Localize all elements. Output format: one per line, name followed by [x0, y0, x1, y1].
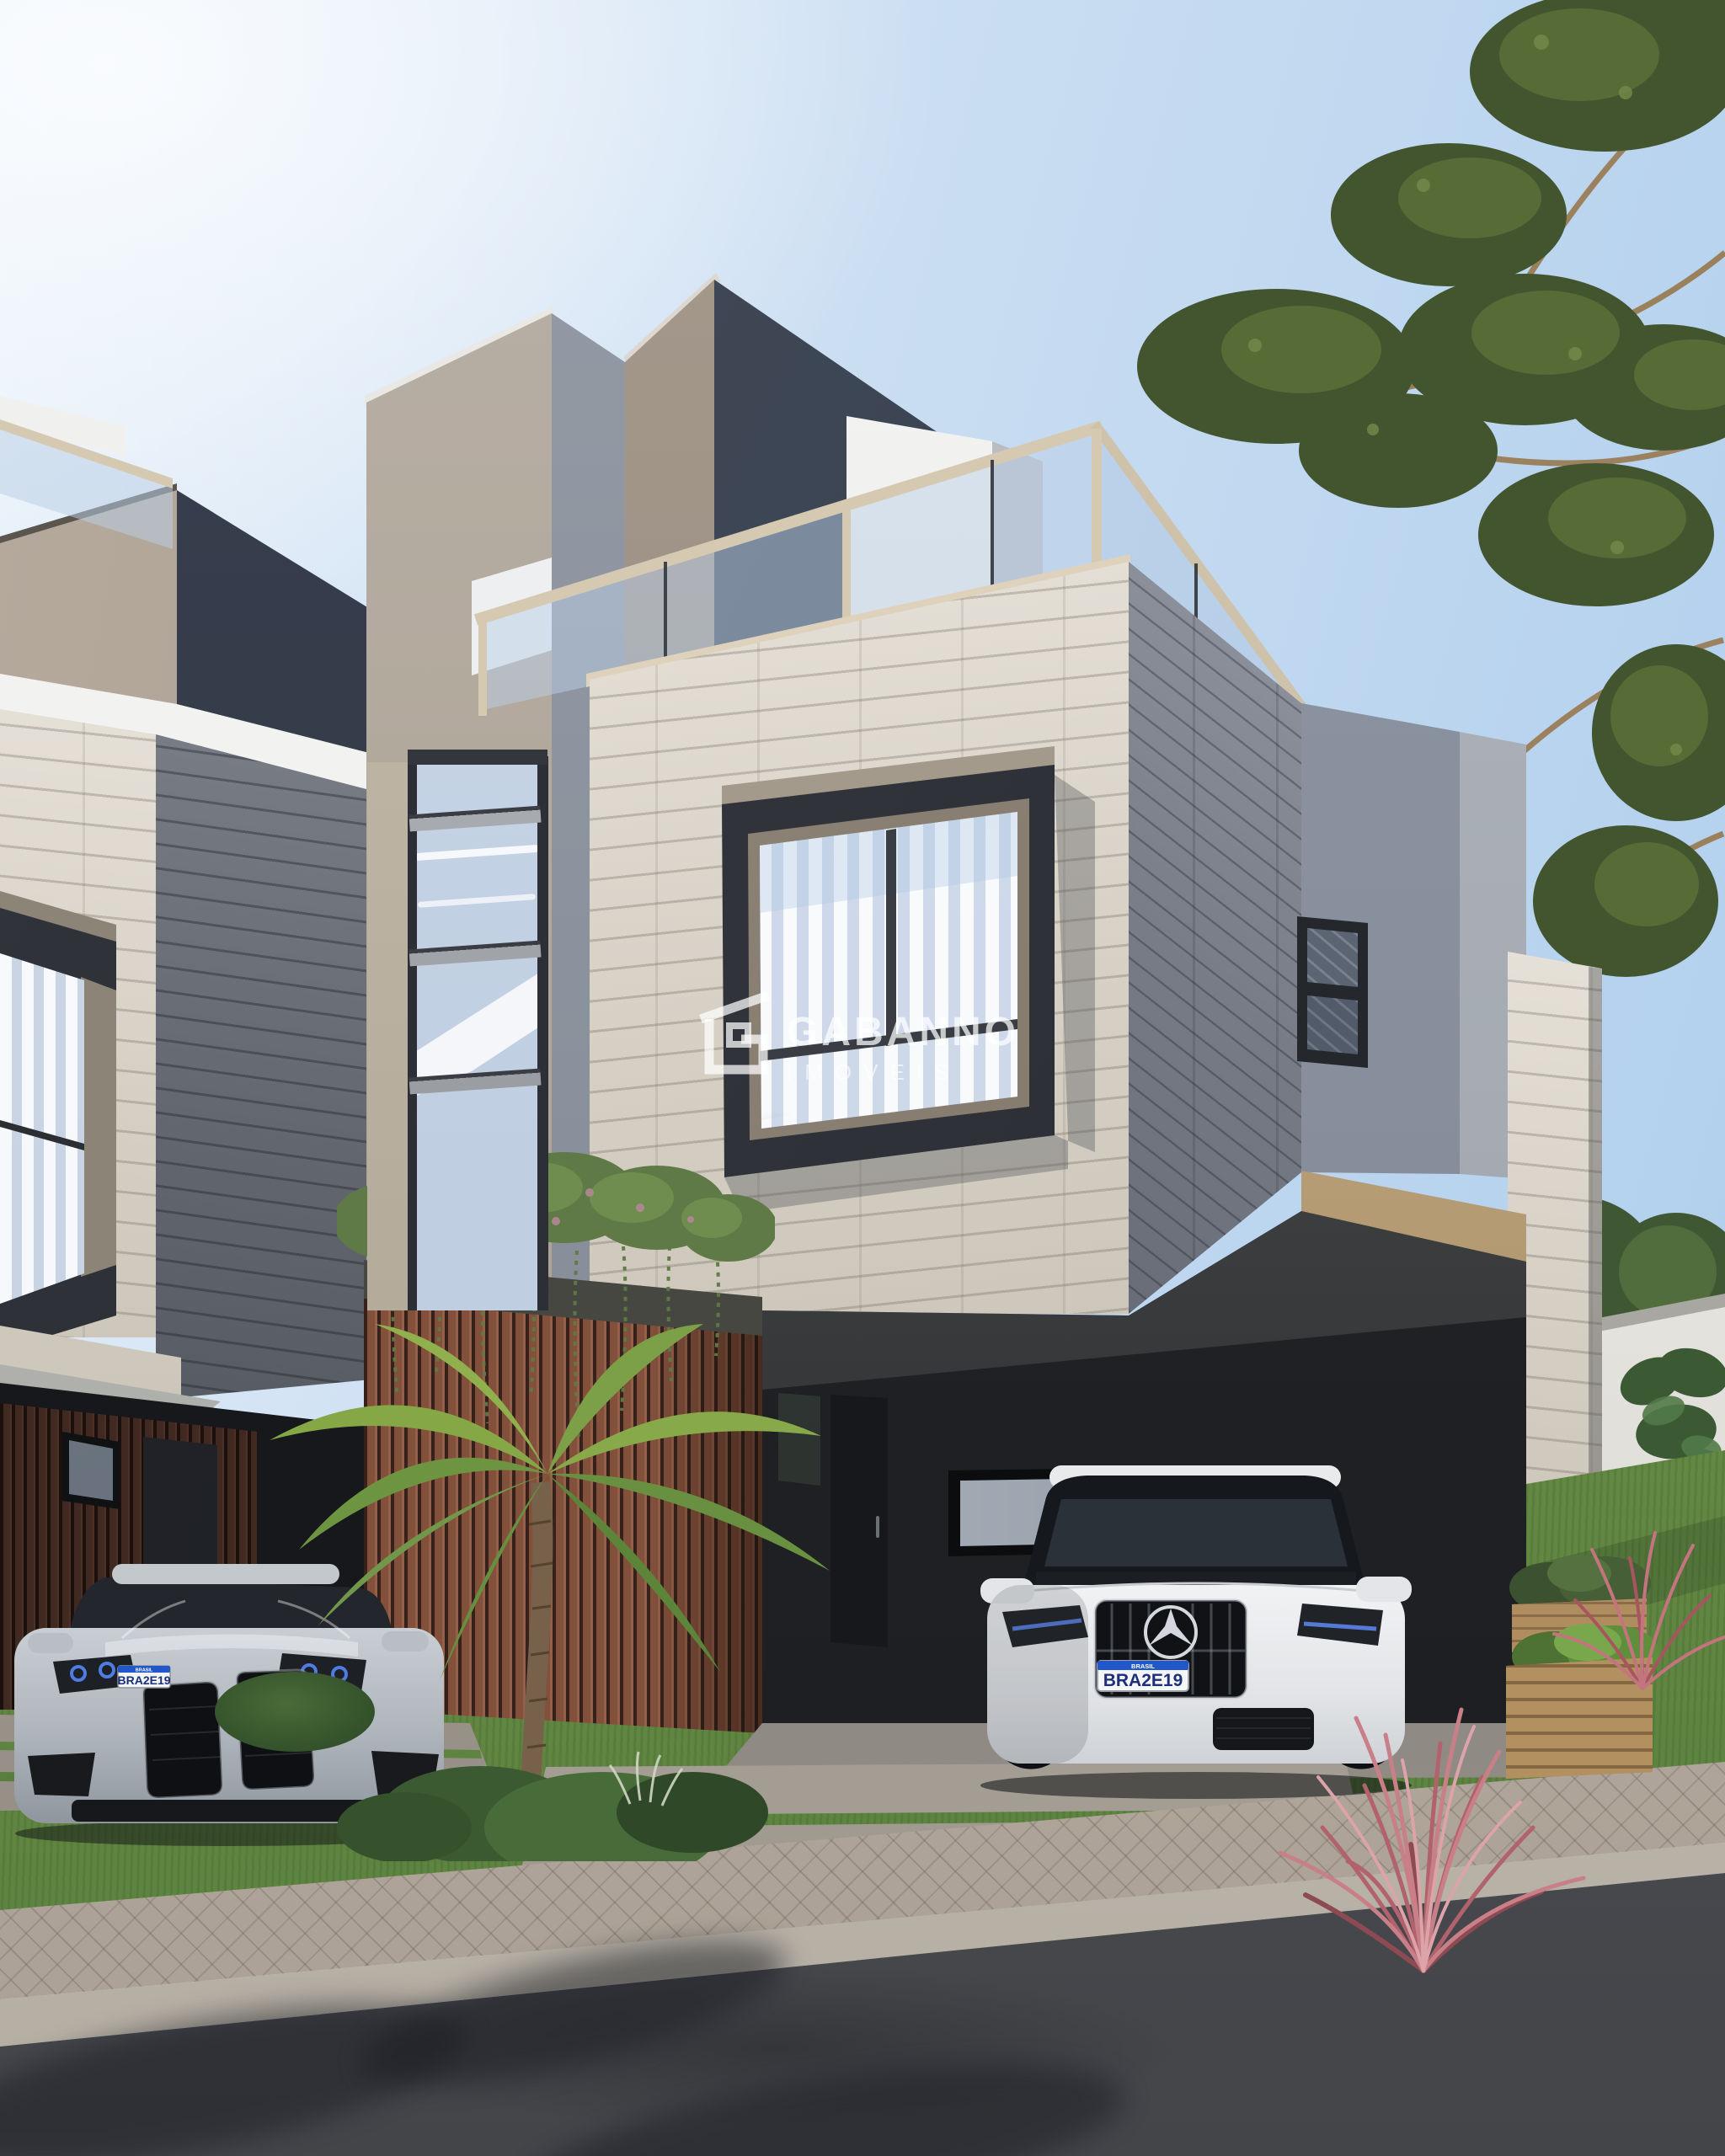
mercedes-plate-band-text: BRASIL: [1131, 1662, 1155, 1670]
curtain-wall-mullion-left: [408, 756, 417, 1310]
watermark-subtitle: IMÓVEIS: [787, 1059, 1019, 1086]
curtain-wall-head-frame: [408, 750, 547, 765]
mercedes-plate-text: BRA2E19: [1103, 1671, 1183, 1690]
watermark-brand: GABANNO: [787, 1012, 1019, 1053]
mercedes-license-plate: BRASIL BRA2E19: [1097, 1661, 1188, 1691]
pink-ornamental-grass-large: [1230, 1684, 1617, 1988]
pink-ornamental-grass-right: [1541, 1508, 1725, 1701]
gabanno-logo-icon: [697, 990, 770, 1076]
curtain-wall-mullion-right: [537, 756, 548, 1310]
shrub-left-of-palm: [215, 1672, 375, 1752]
palm-tree: [126, 1272, 935, 1861]
architectural-render-scene: BRASIL BRA2E19 BRASIL B: [0, 0, 1725, 2156]
watermark: GABANNO IMÓVEIS: [697, 990, 1019, 1086]
